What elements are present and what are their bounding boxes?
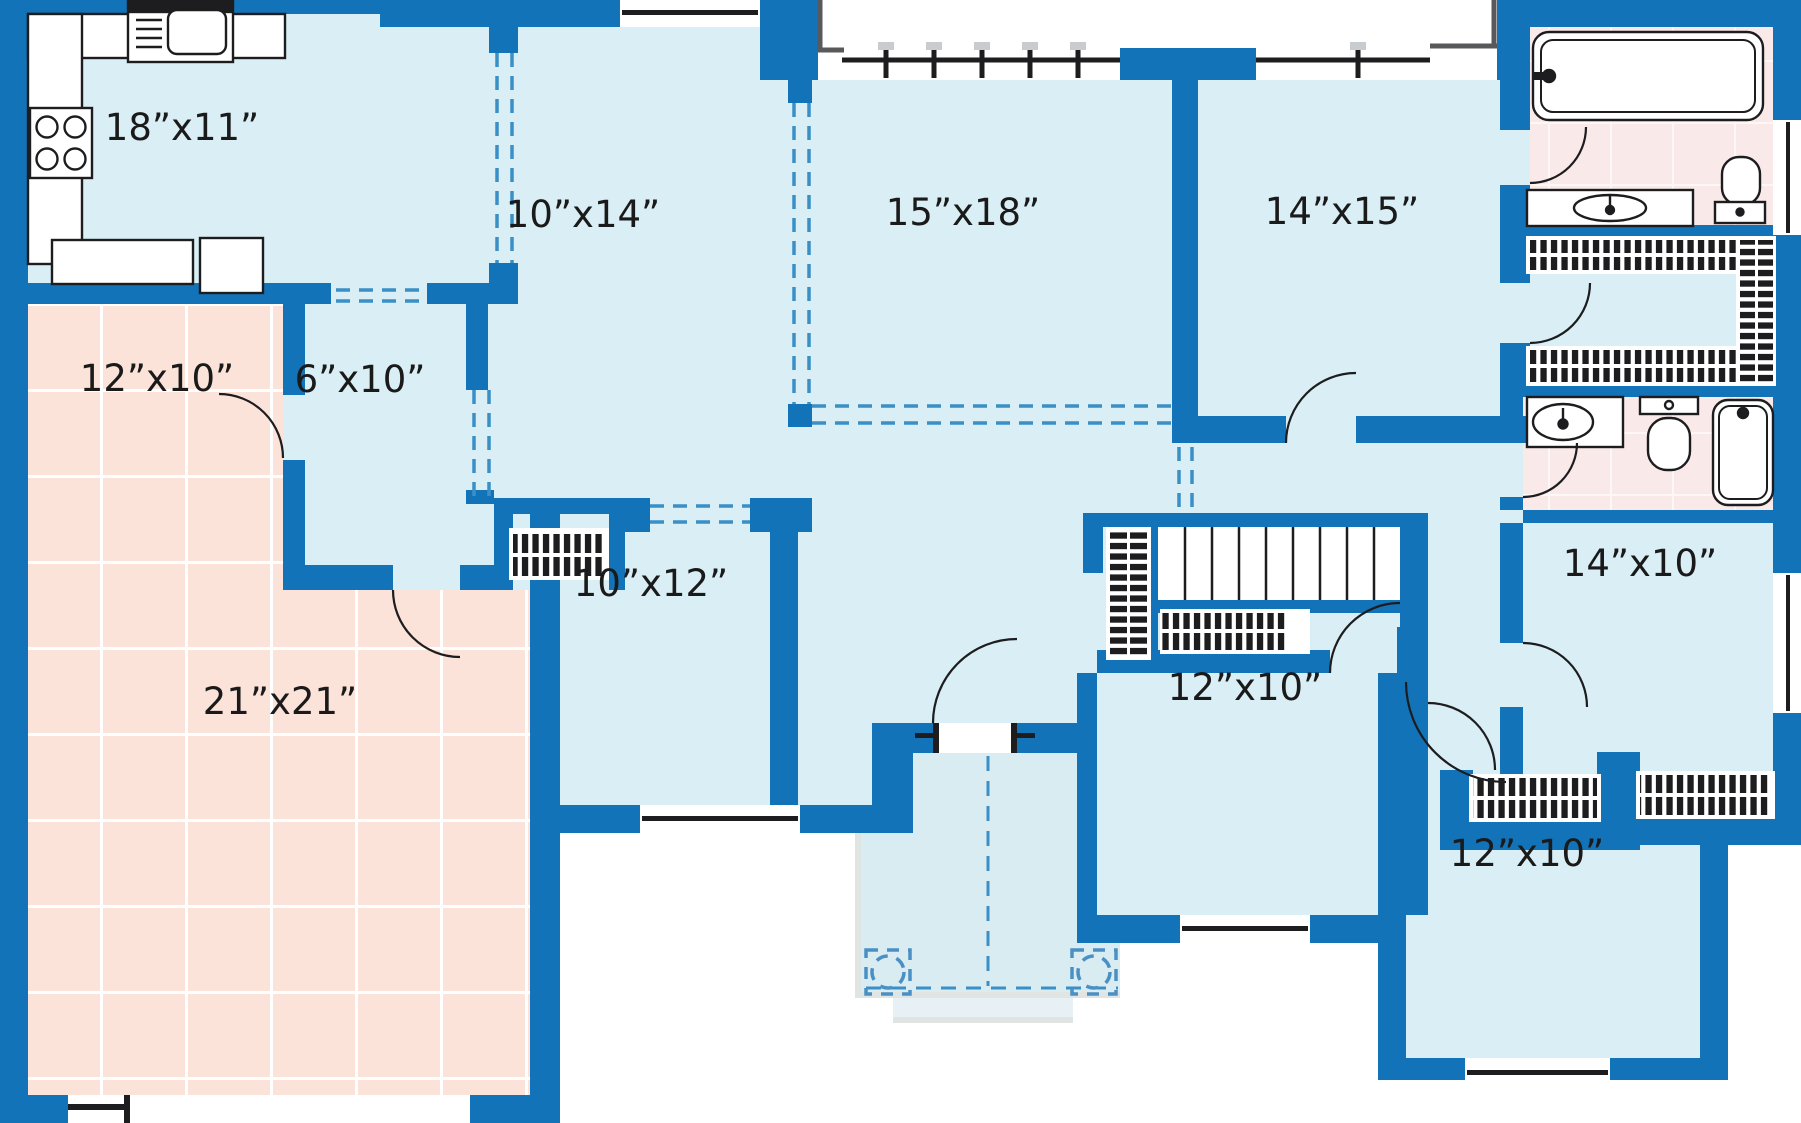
floor-plan-canvas: 18”x11” 10”x14” 15”x18” 14”x15” 12”x10” …	[0, 0, 1801, 1123]
room-label-garage: 21”x21”	[203, 680, 357, 723]
stair-treads	[1158, 527, 1400, 600]
floor-plan-page: 18”x11” 10”x14” 15”x18” 14”x15” 12”x10” …	[0, 0, 1801, 1123]
window-icon	[1773, 573, 1801, 713]
refrigerator-icon	[200, 238, 263, 293]
stair-run-split	[1127, 529, 1130, 658]
stove-icon	[30, 108, 92, 178]
garage-door-icon	[68, 1095, 470, 1123]
closet-rod-icon	[1636, 771, 1775, 819]
bathtub-icon	[1713, 400, 1773, 505]
room-label-study: 10”x12”	[574, 562, 728, 605]
toilet-icon	[1640, 397, 1698, 470]
window-icon	[1180, 915, 1310, 943]
window-icon	[1465, 1058, 1610, 1090]
window-icon	[1773, 120, 1801, 235]
counter-icon	[52, 240, 193, 284]
room-label-family-room: 15”x18”	[886, 191, 1040, 234]
window-icon	[620, 0, 760, 27]
vanity-sink-icon	[1527, 397, 1623, 447]
room-label-master-bedroom: 14”x15”	[1265, 190, 1419, 233]
room-label-bedroom-center: 12”x10”	[1168, 666, 1322, 709]
kitchen-sink-icon	[128, 0, 233, 62]
window-icon	[640, 805, 800, 833]
toilet-icon	[1715, 157, 1765, 223]
vanity-sink-icon	[1527, 190, 1693, 226]
closet-rod-icon	[1160, 609, 1310, 654]
room-label-kitchen: 18”x11”	[105, 106, 259, 149]
room-label-bedroom-se: 12”x10”	[1450, 832, 1604, 875]
room-label-storage-room: 12”x10”	[80, 357, 234, 400]
room-label-living-room: 10”x14”	[506, 193, 660, 236]
bathtub-icon	[1533, 32, 1763, 120]
front-door-opening	[915, 723, 1035, 753]
room-label-mudroom: 6”x10”	[295, 358, 426, 401]
room-label-bedroom-east: 14”x10”	[1563, 542, 1717, 585]
